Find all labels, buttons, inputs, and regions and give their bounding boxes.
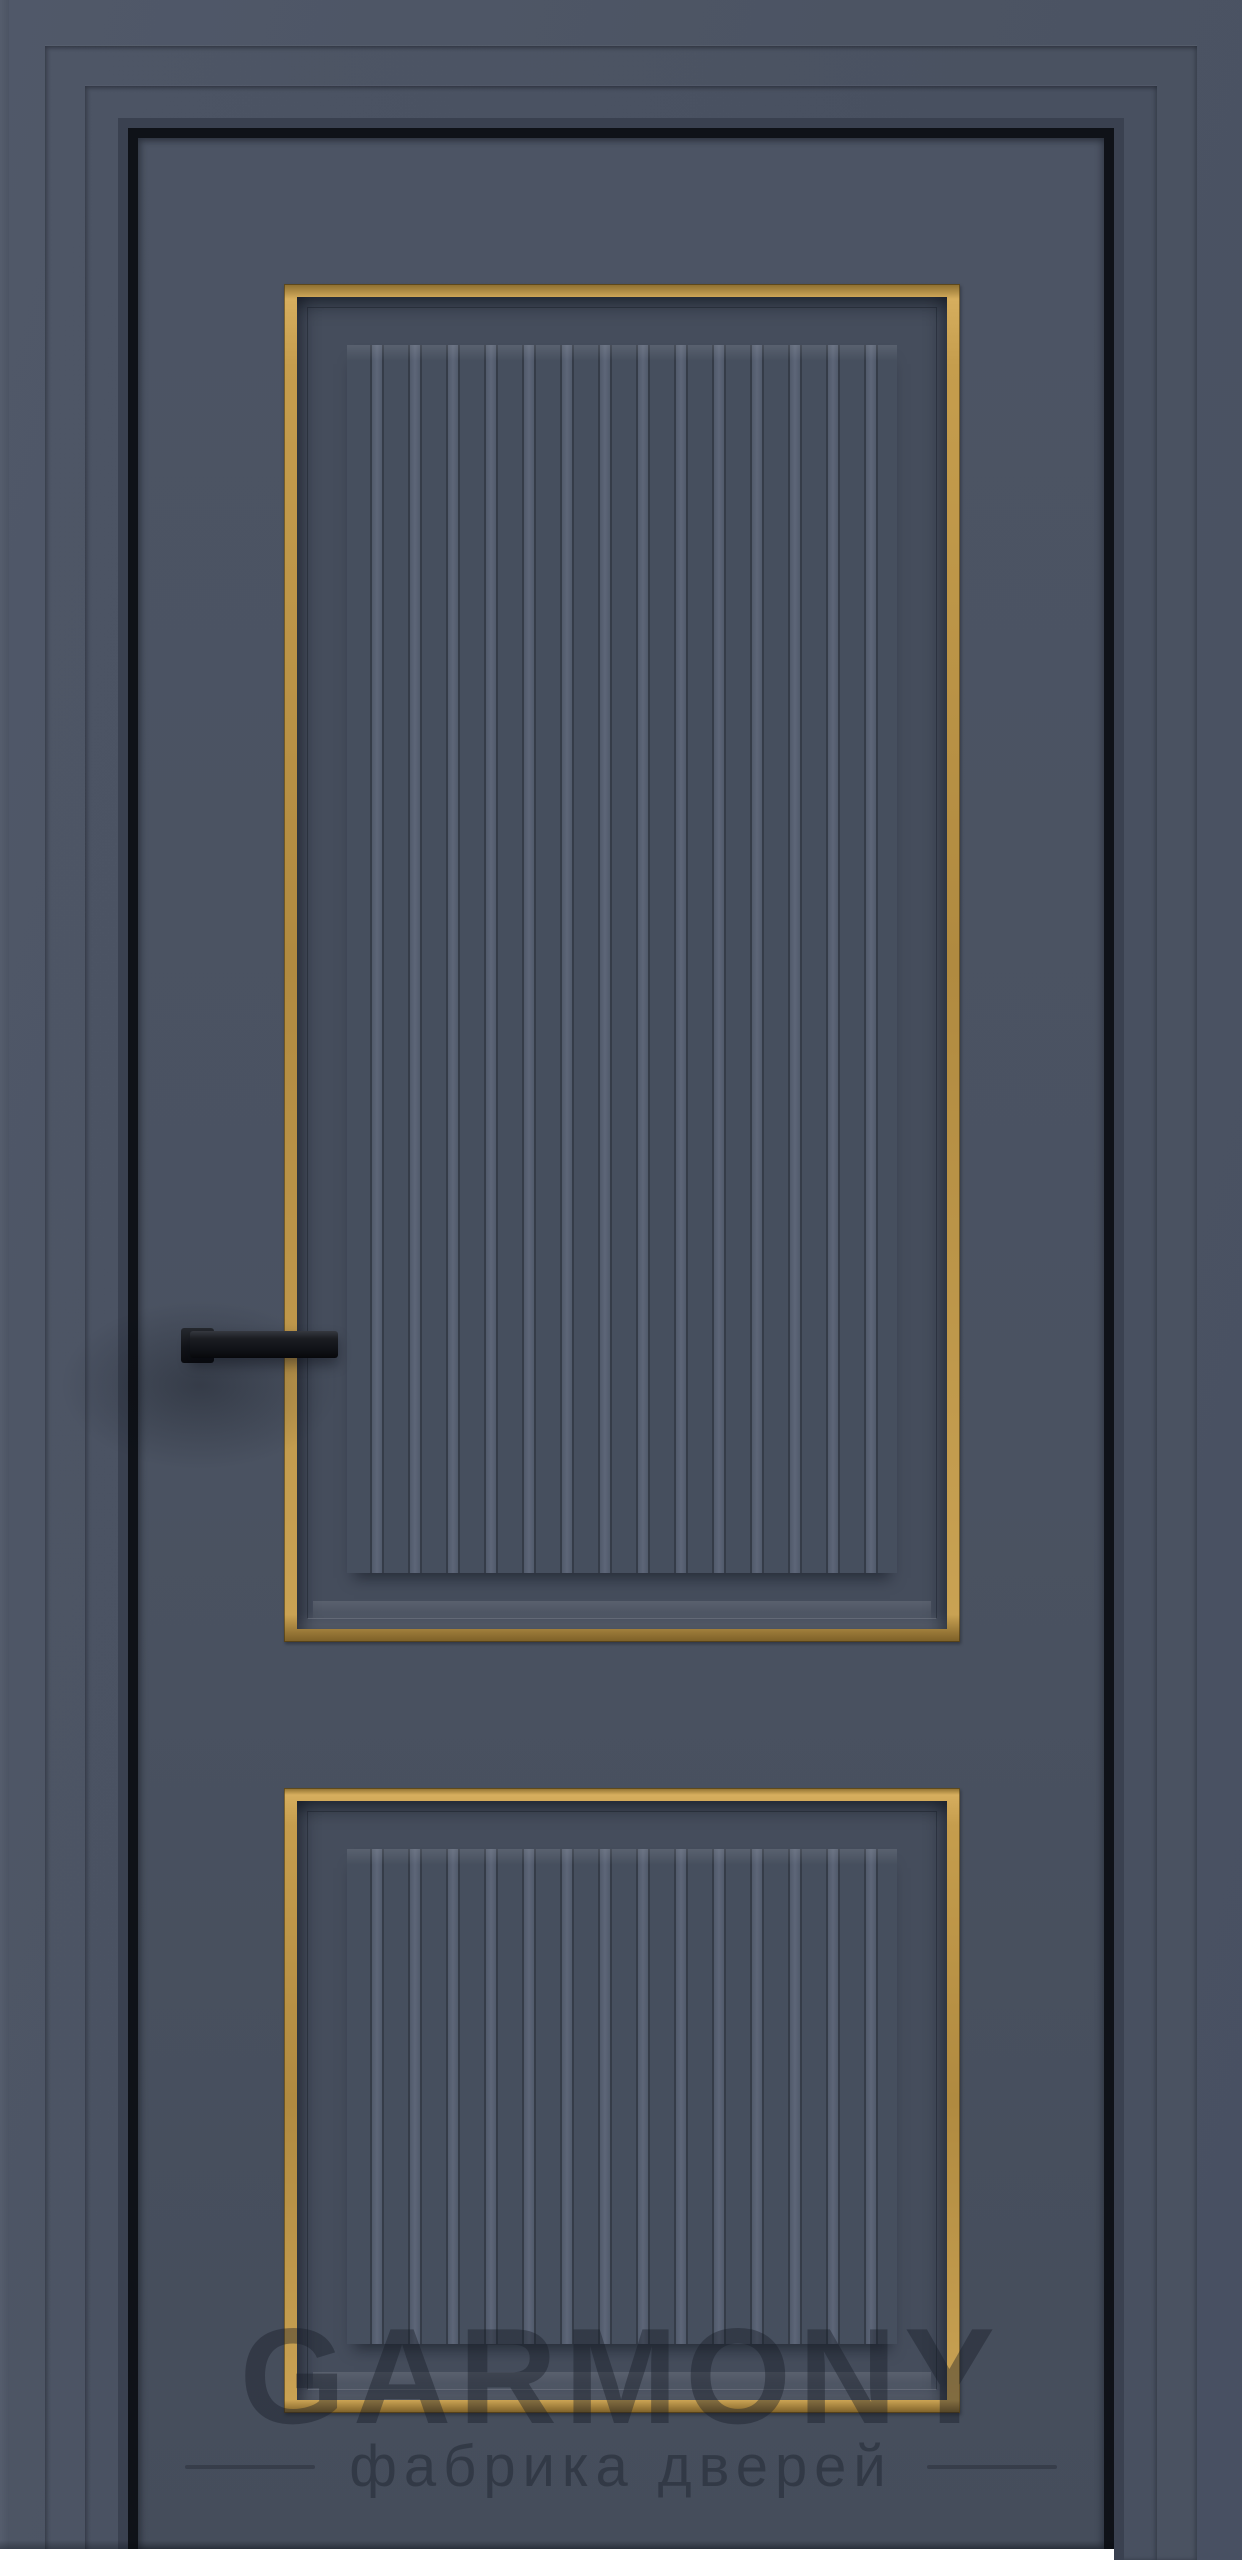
watermark-tagline-row: фабрика дверей [0,2432,1242,2502]
door-handle [190,1331,338,1358]
door-product-photo: GARMONY фабрика дверей [0,0,1242,2560]
watermark-tagline: фабрика дверей [349,2438,893,2496]
upper-panel-gold-trim [284,284,960,1642]
handle-shadow [60,1300,340,1470]
floor-strip [0,2549,1114,2560]
watermark-divider-right [927,2465,1057,2469]
frame-outer-edge [0,0,9,2560]
upper-panel-fluted-field [347,345,897,1573]
watermark-brand: GARMONY [0,2308,1242,2444]
lower-panel-fluted-field [347,1849,897,2344]
watermark-divider-left [185,2465,315,2469]
upper-panel-recess [297,297,947,1629]
upper-panel-bottom-bevel [313,1601,931,1618]
floor-contact-shadow [0,2540,1114,2549]
